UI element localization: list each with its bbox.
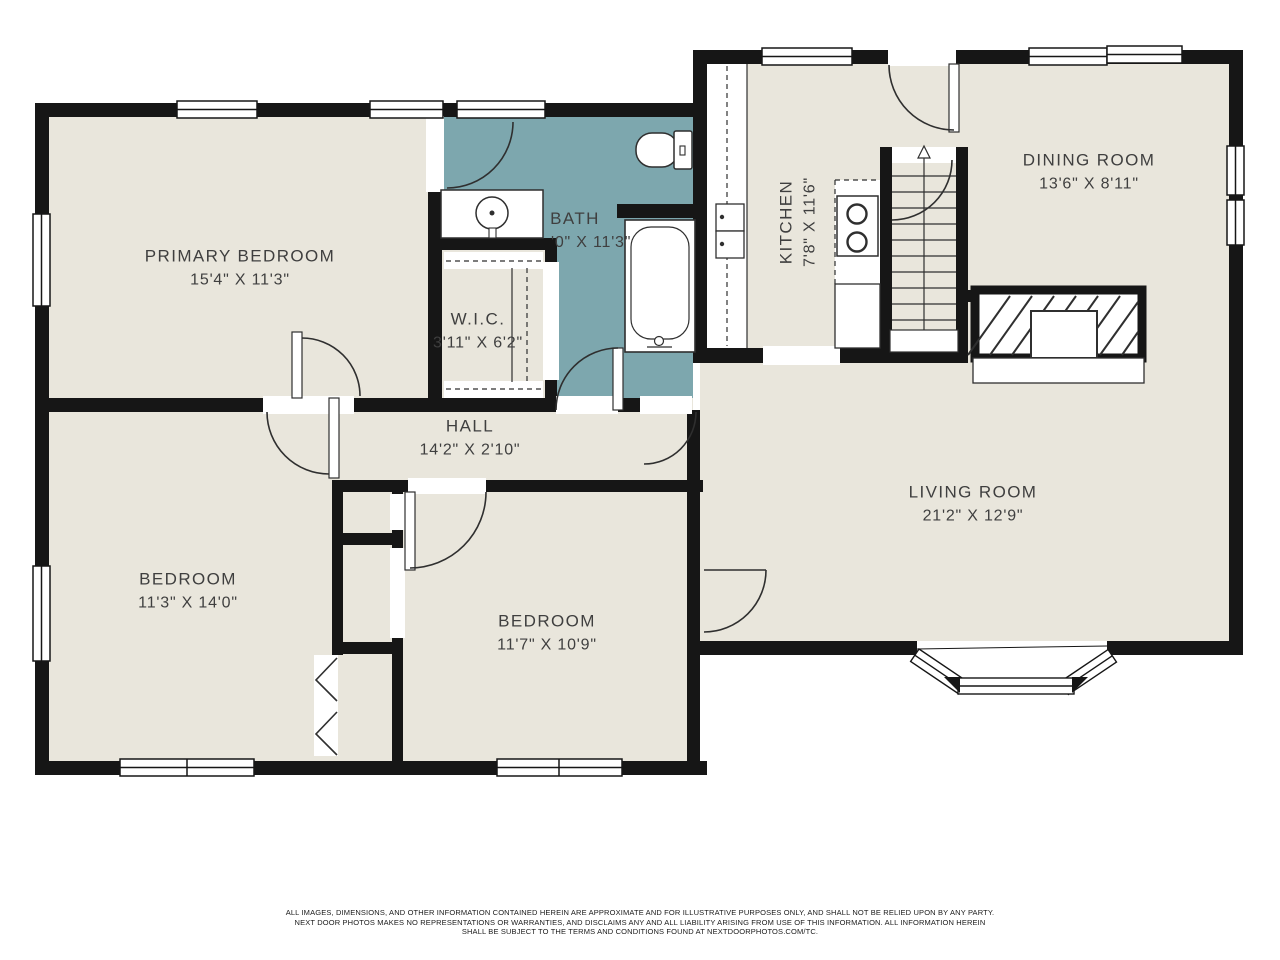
room-label-kitchen: KITCHEN 7'8" X 11'6": [777, 177, 820, 267]
fireplace: [968, 290, 1144, 383]
room-label-bedroom-left: BEDROOM 11'3" X 14'0": [138, 570, 238, 613]
room-label-bath: BATH: [550, 209, 600, 229]
room-label-bedroom-center: BEDROOM 11'7" X 10'9": [497, 612, 597, 655]
bifold-closet-doors: [314, 655, 338, 756]
room-label-wic: W.I.C. 3'11" X 6'2": [433, 310, 523, 353]
room-label-dining-room: DINING ROOM 13'6" X 8'11": [1023, 151, 1156, 194]
room-dims-bath: '0" X 11'3": [551, 234, 631, 252]
room-label-living-room: LIVING ROOM 21'2" X 12'9": [909, 483, 1038, 526]
floor-plan-drawing: [0, 0, 1280, 960]
under-stair-closet: [890, 330, 958, 352]
floor-plan: PRIMARY BEDROOM 15'4" X 11'3" BATH '0" X…: [0, 0, 1280, 960]
kitchen-sink: [716, 204, 744, 258]
bathtub: [625, 220, 695, 352]
room-label-hall: HALL 14'2" X 2'10": [420, 417, 521, 460]
stove: [837, 196, 878, 256]
toilet: [636, 131, 692, 169]
vanity-sink: [441, 190, 543, 238]
room-label-primary-bedroom: PRIMARY BEDROOM 15'4" X 11'3": [145, 247, 335, 290]
fireplace-hearth: [973, 358, 1144, 383]
disclaimer-text: ALL IMAGES, DIMENSIONS, AND OTHER INFORM…: [90, 908, 1190, 937]
